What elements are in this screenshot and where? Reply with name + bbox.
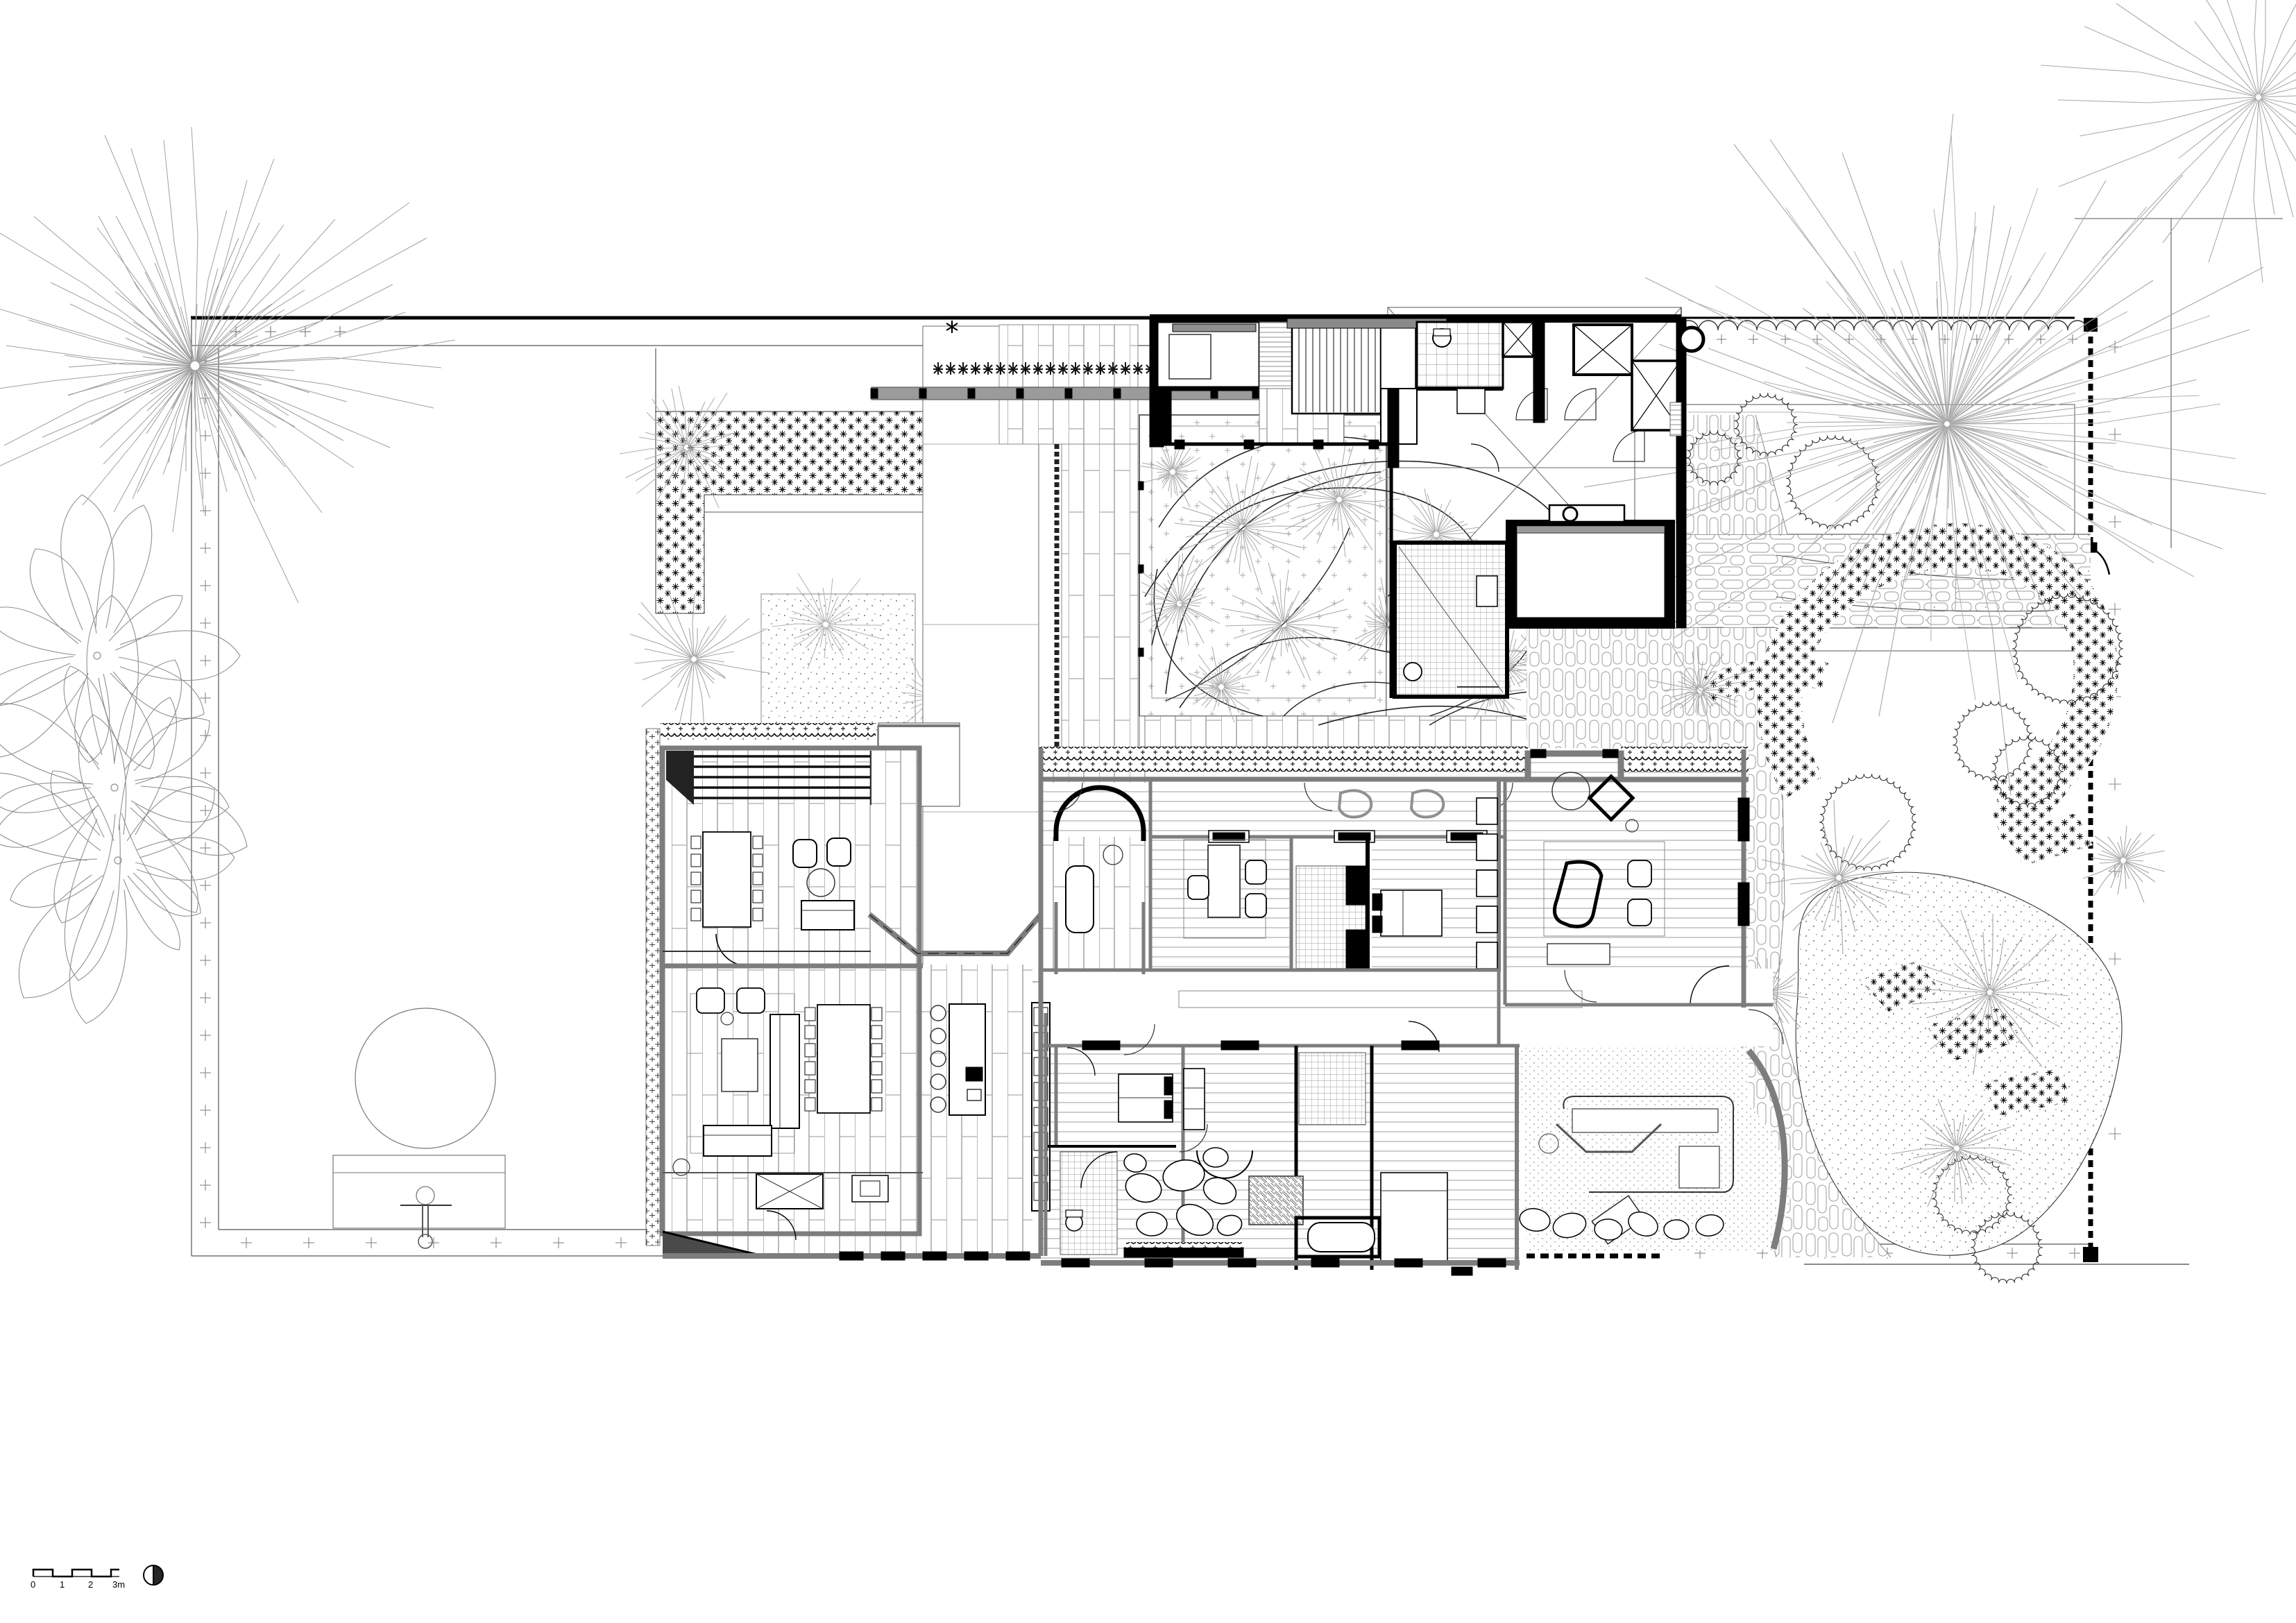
svg-text:3m: 3m (112, 1579, 125, 1590)
svg-text:0: 0 (31, 1579, 35, 1590)
svg-text:1: 1 (60, 1579, 65, 1590)
svg-text:2: 2 (88, 1579, 93, 1590)
